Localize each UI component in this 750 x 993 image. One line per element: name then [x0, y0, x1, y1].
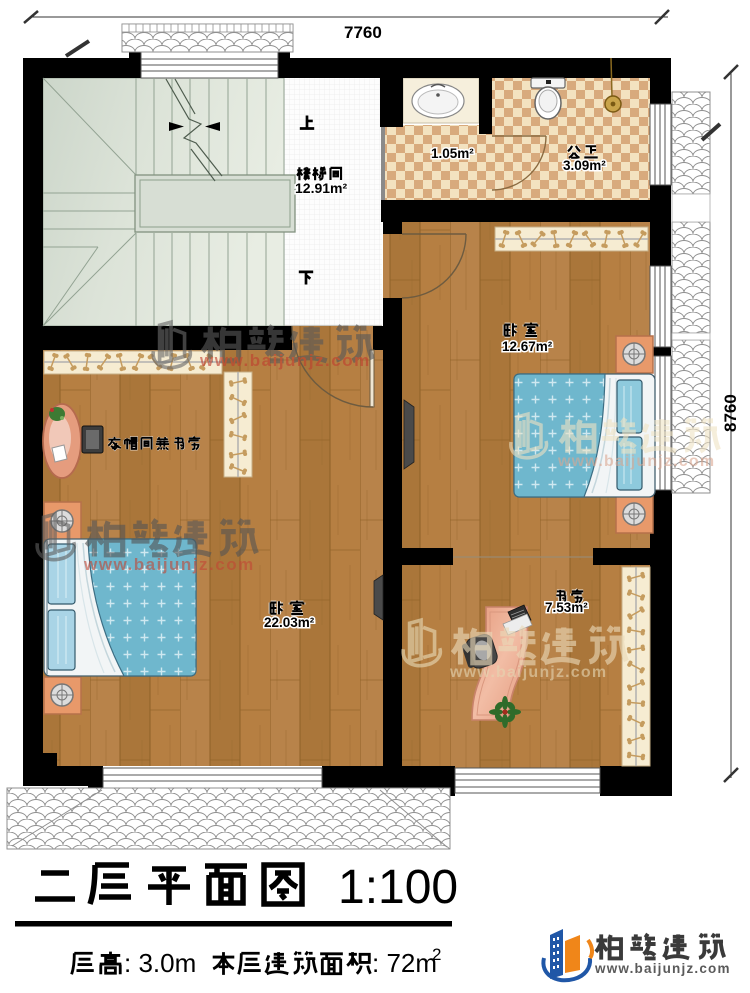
svg-text:7760: 7760 [344, 23, 382, 42]
svg-text:www.baijunjz.com: www.baijunjz.com [594, 961, 731, 976]
svg-text:12.67m²: 12.67m² [502, 339, 553, 354]
svg-text:www.baijunjz.com: www.baijunjz.com [83, 555, 255, 574]
svg-text:3.09m²: 3.09m² [563, 158, 606, 173]
svg-text:www.baijunjz.com: www.baijunjz.com [557, 453, 715, 470]
svg-text:2: 2 [432, 945, 441, 964]
svg-text:12.91m²: 12.91m² [295, 180, 347, 196]
svg-text:7.53m²: 7.53m² [545, 600, 588, 615]
svg-text:: 3.0m: : 3.0m [124, 948, 196, 978]
svg-text:1:100: 1:100 [338, 861, 458, 914]
svg-text:: 72m: : 72m [372, 948, 437, 978]
svg-text:www.baijunjz.com: www.baijunjz.com [199, 351, 371, 370]
svg-text:1.05m²: 1.05m² [431, 146, 474, 161]
svg-text:8760: 8760 [721, 394, 740, 432]
svg-text:www.baijunjz.com: www.baijunjz.com [449, 664, 607, 681]
svg-text:22.03m²: 22.03m² [264, 615, 315, 630]
